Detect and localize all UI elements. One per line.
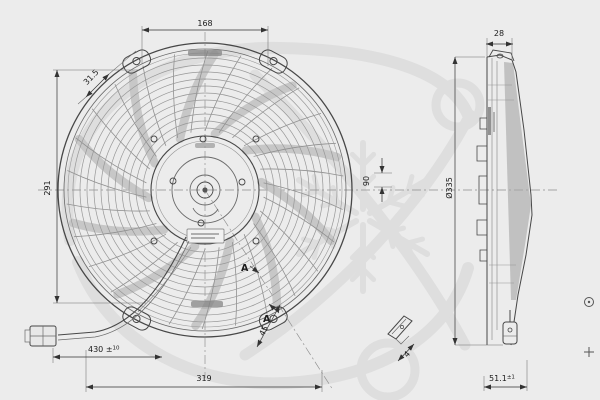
dim-left-height: 291 bbox=[43, 180, 52, 195]
shroud-brand-text-top bbox=[188, 50, 222, 56]
dim-wire-length-value: 430 ± bbox=[88, 345, 113, 354]
dim-top-width: 168 bbox=[197, 19, 212, 28]
dim-bottom-width: 319 bbox=[196, 374, 211, 383]
fan-technical-drawing: 168 31.5 291 90 28 Ø335 430 ±10 319 bbox=[0, 0, 600, 400]
dim-overall-depth-tolerance: ±1 bbox=[507, 375, 515, 381]
dim-wire-length-tolerance: 10 bbox=[113, 346, 120, 352]
dim-hub-depth: 90 bbox=[362, 176, 371, 186]
dim-fan-diameter: Ø335 bbox=[444, 177, 454, 199]
hub-small-text bbox=[195, 143, 215, 148]
hub-label-plate bbox=[187, 229, 224, 243]
dim-shroud-depth: 28 bbox=[494, 29, 504, 38]
section-label-a-top: A bbox=[241, 263, 249, 274]
dim-overall-depth-value: 51.1 bbox=[489, 374, 507, 383]
section-label-a-bottom: A bbox=[263, 314, 271, 325]
shroud-brand-text-bottom bbox=[191, 301, 223, 307]
wire-connector bbox=[25, 326, 56, 346]
side-label-text bbox=[488, 107, 491, 135]
